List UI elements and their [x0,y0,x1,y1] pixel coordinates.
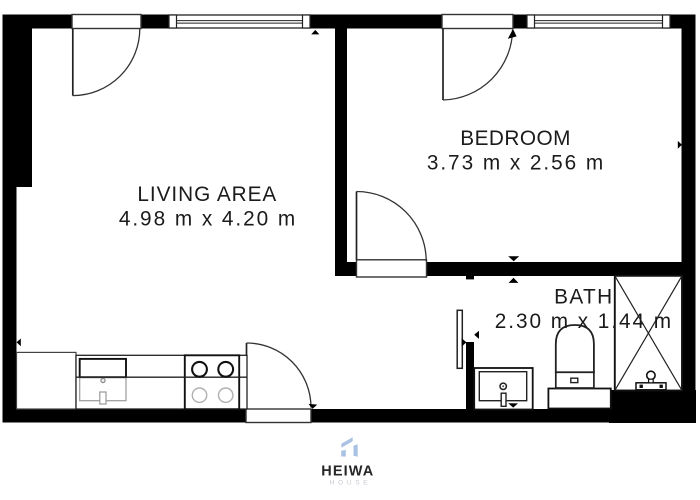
svg-text:BATH: BATH [554,286,613,309]
svg-text:HOUSE: HOUSE [330,479,372,486]
svg-text:2.30 m x 1.44 m: 2.30 m x 1.44 m [495,310,673,333]
svg-text:HEIWA: HEIWA [321,464,374,480]
svg-text:3.73 m x 2.56 m: 3.73 m x 2.56 m [427,151,605,174]
svg-text:LIVING AREA: LIVING AREA [137,183,277,206]
svg-text:4.98 m x 4.20 m: 4.98 m x 4.20 m [119,208,297,231]
svg-text:BEDROOM: BEDROOM [460,127,571,150]
